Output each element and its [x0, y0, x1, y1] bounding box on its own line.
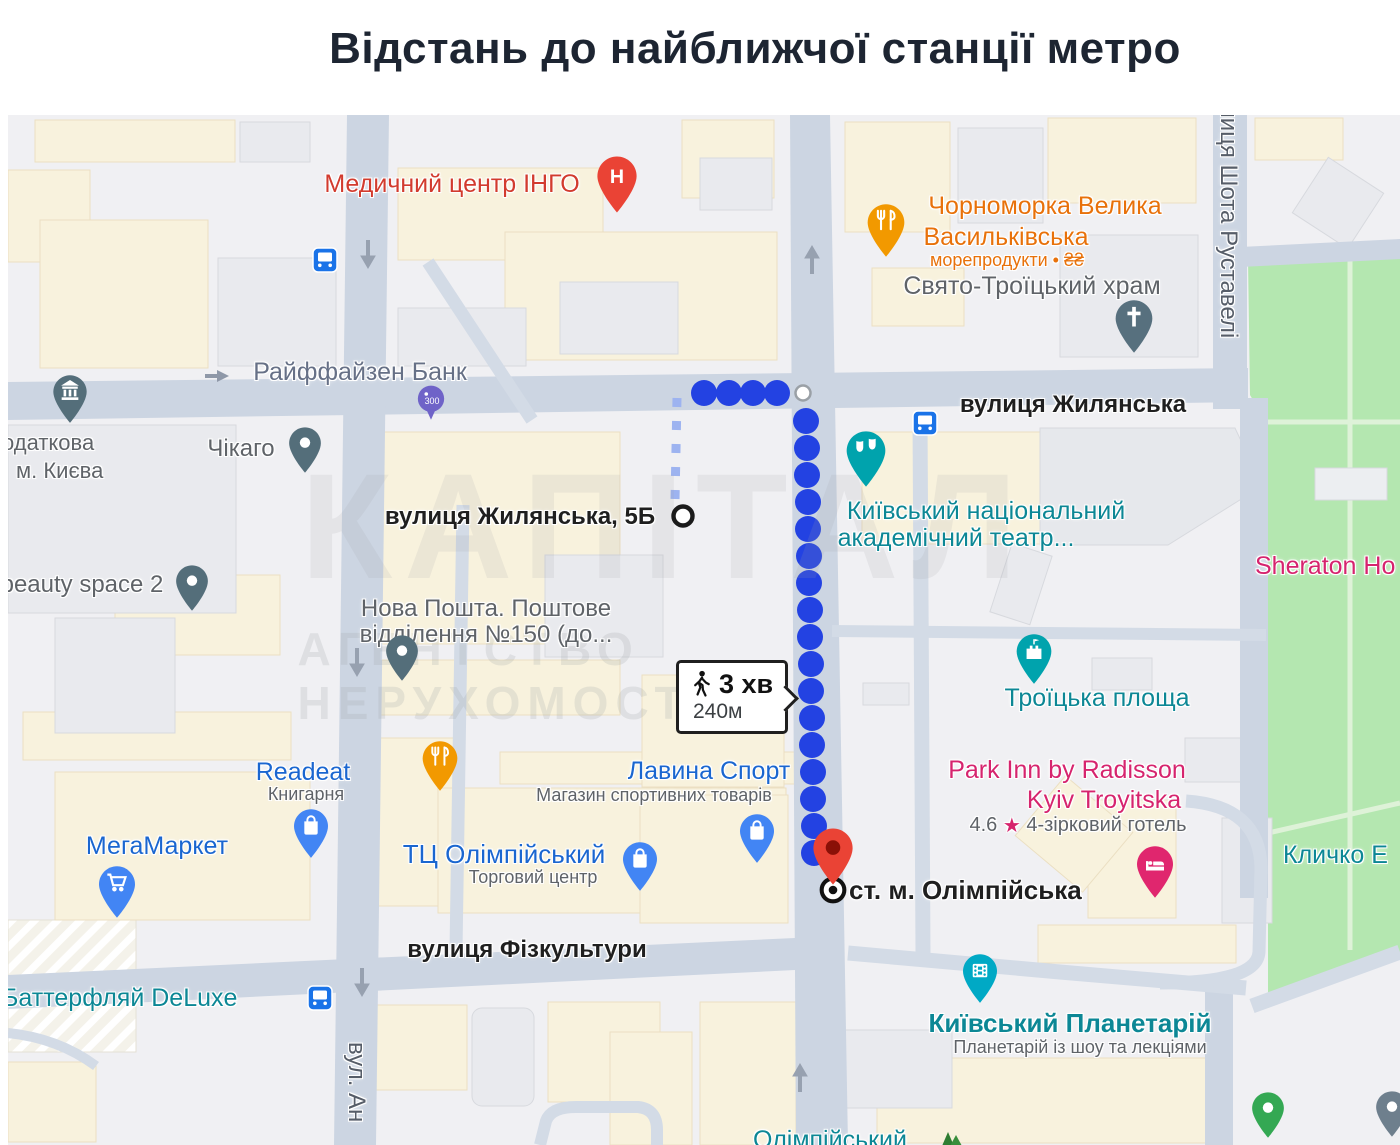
star-icon: ★ — [1003, 815, 1021, 837]
church-pin[interactable] — [1114, 299, 1154, 354]
nova-poshta-pin[interactable] — [385, 634, 419, 682]
bus-stop-icon[interactable] — [912, 410, 938, 436]
poi-sublabel-planetarium: Планетарій із шоу та лекціями — [953, 1037, 1206, 1058]
rating-value: 4.6 — [969, 814, 997, 836]
shop-pin-lavyna[interactable] — [739, 813, 776, 864]
right-arrow-icon — [203, 369, 229, 383]
destination-pin[interactable] — [812, 827, 854, 886]
parking-300-pin[interactable]: 300 — [415, 384, 447, 424]
hotel-type: 4-зірковий готель — [1026, 814, 1186, 836]
poi-label-nova-poshta-1[interactable]: Нова Пошта. Поштове — [361, 595, 611, 623]
walk-distance: 240м — [693, 700, 773, 724]
walking-person-icon — [689, 670, 713, 700]
poi-label-lavyna[interactable]: Лавина Спорт — [628, 757, 791, 786]
poi-sublabel-chornomorka: морепродукти • ₴₴ — [930, 250, 1084, 271]
poi-label-planetarium[interactable]: Київський Планетарій — [929, 1008, 1212, 1039]
poi-label-theater-1[interactable]: Київський національний — [847, 497, 1125, 526]
poi-label-raiffeisen[interactable]: Райффайзен Банк — [253, 358, 467, 387]
theater-pin[interactable] — [845, 430, 887, 488]
poi-label-olimpiyskyi-partial[interactable]: Олімпійський — [753, 1126, 907, 1145]
trees-icon — [934, 1126, 966, 1145]
street-label-rustaveli: вулиця Шота Руставелі — [1214, 80, 1242, 338]
origin-marker-icon[interactable] — [668, 501, 698, 531]
poi-label-tc-olimpiyskyi[interactable]: ТЦ Олімпійський — [403, 839, 605, 870]
poi-sublabel-lavyna: Магазин спортивних товарів — [536, 785, 772, 806]
bus-stop-icon[interactable] — [312, 247, 338, 273]
planetarium-pin[interactable] — [962, 953, 999, 1004]
poi-label-klychko[interactable]: Кличко Е — [1283, 841, 1388, 870]
poi-sublabel-readeat: Книгарня — [268, 784, 344, 805]
map-screenshot: Відстань до найближчої станції метро — [0, 0, 1400, 1145]
square-pin-troitska[interactable] — [1015, 633, 1053, 685]
bank-pin[interactable] — [52, 374, 88, 424]
beauty-space-pin[interactable] — [175, 564, 209, 612]
street-label-antonovycha: вул. Ан — [342, 1042, 370, 1122]
poi-label-podatkova-2[interactable]: м. Києва — [16, 458, 103, 484]
shop-pin-readeat[interactable] — [293, 808, 330, 859]
chikago-pin[interactable] — [288, 426, 322, 474]
restaurant-pin-chornomorka[interactable] — [866, 203, 906, 258]
parkinn-rating: 4.6 ★ 4-зірковий готель — [969, 813, 1186, 838]
poi-label-chornomorka-2[interactable]: Васильківська — [923, 223, 1088, 252]
svg-text:H: H — [610, 166, 624, 188]
metro-station-label[interactable]: ст. м. Олімпійська — [849, 875, 1082, 906]
poi-sublabel-tc-olimpiyskyi: Торговий центр — [469, 867, 598, 888]
poi-label-med-center[interactable]: Медичний центр ІНГО — [324, 170, 579, 199]
restaurant-pin-tc[interactable] — [421, 740, 459, 792]
poi-label-chornomorka-1[interactable]: Чорноморка Велика — [928, 192, 1161, 221]
poi-label-troitska[interactable]: Троїцька площа — [1004, 684, 1189, 713]
svg-text:300: 300 — [425, 396, 440, 406]
shop-pin-tc-olimpiyskyi[interactable] — [622, 841, 659, 892]
route-start-node — [796, 386, 811, 401]
poi-label-beauty-space[interactable]: beauty space 2 — [1, 571, 164, 599]
hotel-pin-parkinn[interactable] — [1136, 845, 1175, 899]
poi-label-sheraton[interactable]: Sheraton Ho — [1255, 552, 1395, 581]
left-margin — [0, 0, 8, 1145]
poi-label-hram[interactable]: Свято-Троїцький храм — [903, 272, 1160, 301]
poi-label-podatkova-1[interactable]: одаткова — [2, 430, 94, 456]
poi-label-butterfly[interactable]: Баттерфляй DeLuxe — [2, 984, 237, 1013]
poi-label-parkinn-1[interactable]: Park Inn by Radisson — [948, 756, 1186, 785]
poi-label-theater-2[interactable]: академічний театр... — [838, 524, 1075, 553]
page-title: Відстань до найближчої станції метро — [110, 24, 1400, 74]
poi-label-megamarket[interactable]: МегаМаркет — [86, 832, 228, 861]
hospital-pin[interactable]: H — [596, 155, 638, 214]
walk-time: 3 хв — [719, 669, 773, 700]
street-label-zhylianska: вулиця Жилянська — [960, 391, 1186, 419]
origin-address-label[interactable]: вулиця Жилянська, 5Б — [385, 503, 655, 531]
gray-pin[interactable] — [1375, 1090, 1400, 1138]
street-label-fizkultury: вулиця Фізкультури — [407, 936, 646, 964]
title-banner: Відстань до найближчої станції метро — [0, 0, 1400, 115]
poi-label-chikago[interactable]: Чікаго — [207, 435, 274, 463]
supermarket-pin-megamarket[interactable] — [98, 865, 137, 919]
bus-stop-icon[interactable] — [307, 985, 333, 1011]
poi-label-readeat[interactable]: Readeat — [256, 758, 351, 787]
walk-time-bubble[interactable]: 3 хв 240м — [676, 660, 788, 734]
poi-label-parkinn-2[interactable]: Kyiv Troyitska — [1027, 786, 1181, 815]
green-pin[interactable] — [1251, 1091, 1285, 1139]
